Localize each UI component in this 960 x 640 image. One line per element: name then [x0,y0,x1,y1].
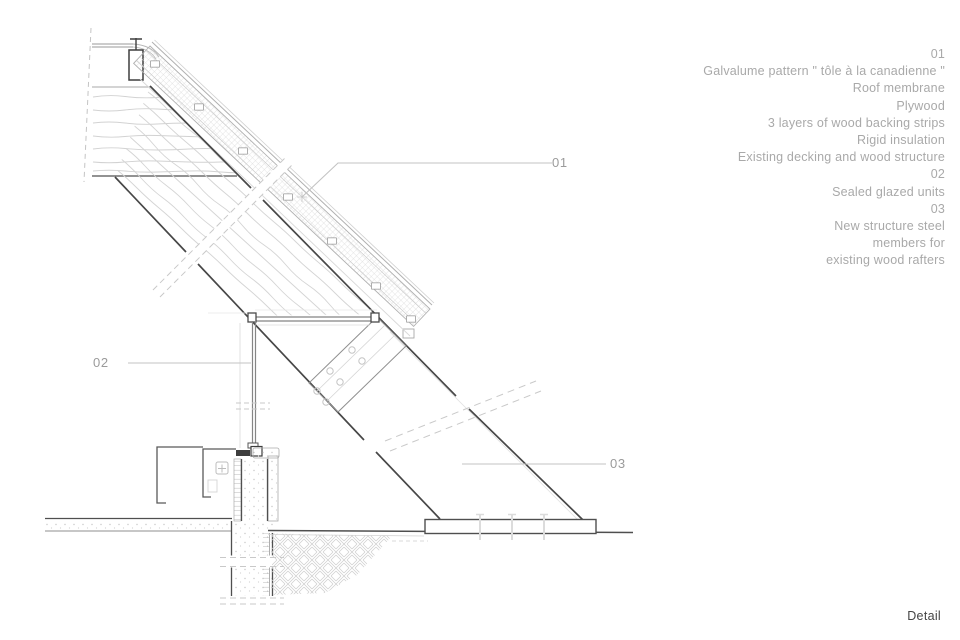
callout-leaders [128,163,606,464]
leader-01 [302,163,552,197]
earth-hatch [272,534,392,596]
bolt-circles [314,347,365,405]
legend-ref-01: 01 [703,46,945,63]
legend-item: Existing decking and wood structure [703,149,945,166]
break-line-lower [385,381,541,451]
callout-label-01: 01 [552,155,568,170]
grade-and-earth [268,531,633,596]
base-plate [425,514,596,540]
foundation-wall [45,519,284,609]
galvalume-line [152,42,432,305]
legend-item: New structure steel [703,218,945,235]
legend-item: Rigid insulation [703,132,945,149]
legend: 01 Galvalume pattern " tôle à la canadie… [703,46,945,270]
legend-item: Sealed glazed units [703,184,945,201]
insulation-hatch-band [134,46,430,326]
legend-item: Roof membrane [703,80,945,97]
drawing-title: Detail [907,609,941,623]
connection-plate [309,317,406,412]
sill-assembly [157,443,279,521]
legend-item: existing wood rafters [703,252,945,269]
detail-sheet: 01 02 03 01 Galvalume pattern " tôle à l… [0,0,960,640]
glazing-pane [253,321,256,450]
legend-ref-03: 03 [703,201,945,218]
brick-strip [234,459,241,521]
callout-label-02: 02 [93,355,109,370]
concrete-core [241,459,268,521]
break-lines [152,159,542,452]
cut-line-dashed [84,28,91,182]
rafter-top-edge [150,86,583,520]
legend-item: Galvalume pattern " tôle à la canadienne… [703,63,945,80]
legend-item: 3 layers of wood backing strips [703,115,945,132]
legend-ref-02: 02 [703,166,945,183]
parging-strip [268,456,278,521]
legend-item: members for [703,235,945,252]
glazing-seat [236,450,250,456]
legend-item: Plywood [703,98,945,115]
callout-label-03: 03 [610,456,626,471]
glazing-head [252,317,378,321]
